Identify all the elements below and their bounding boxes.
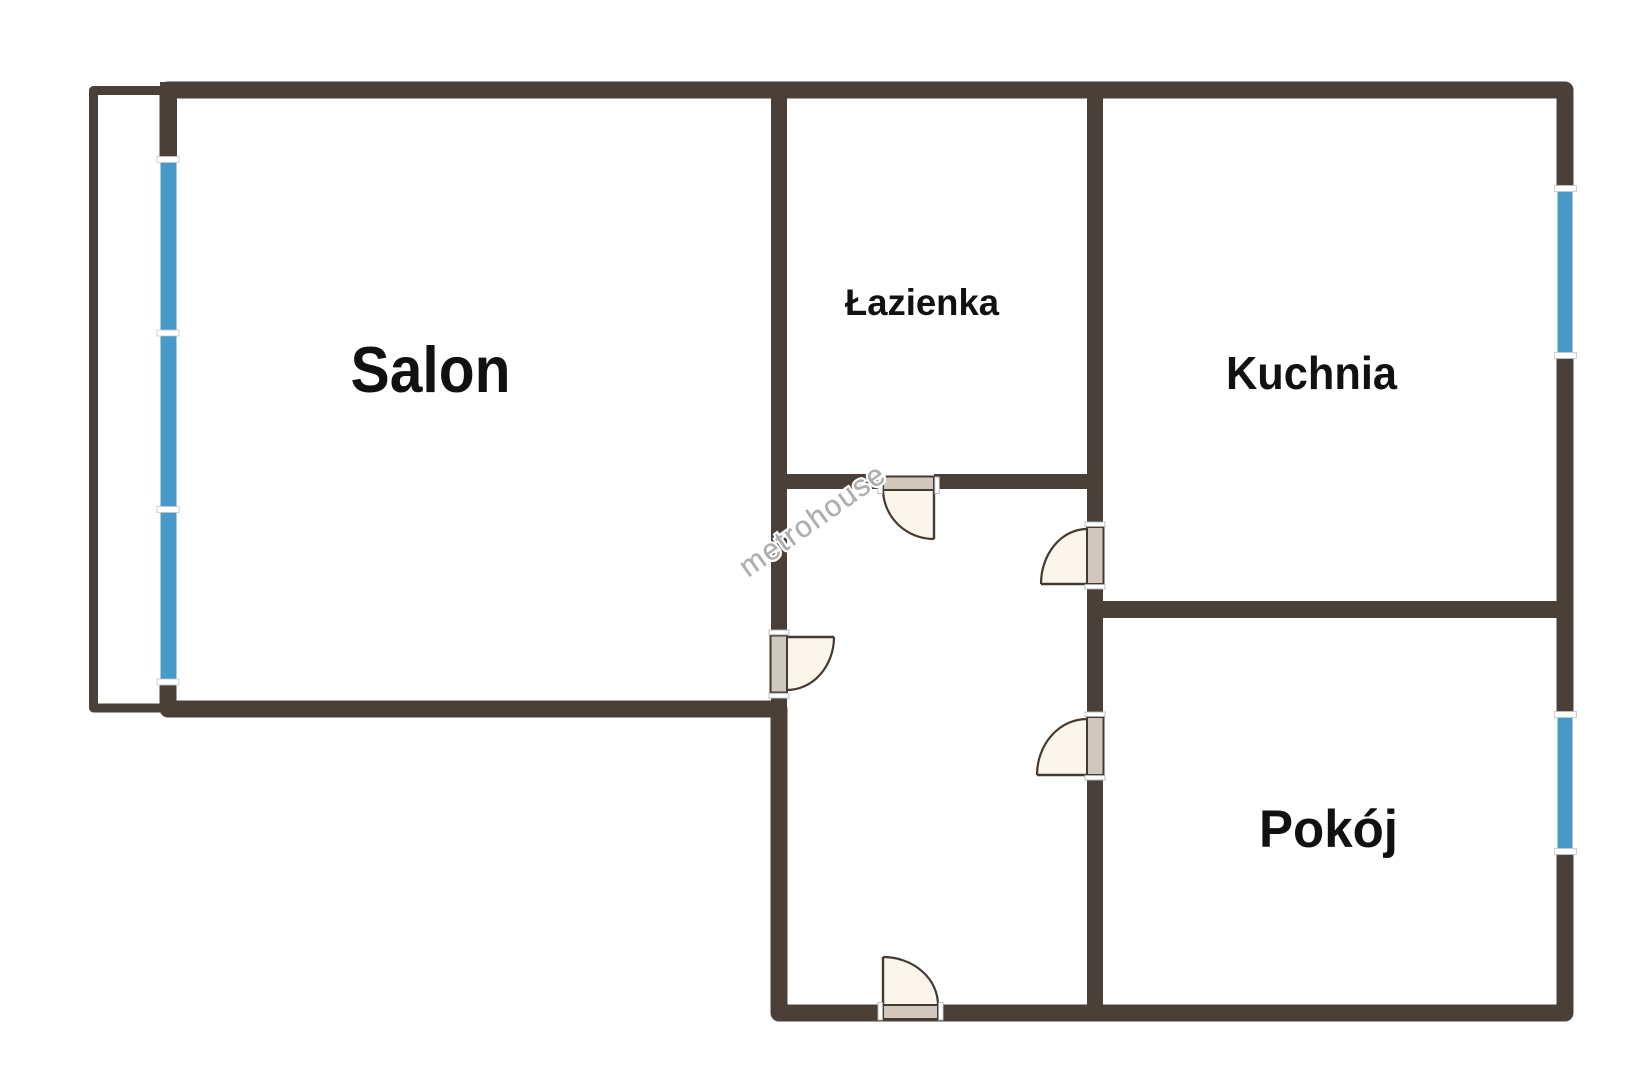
svg-text:Salon: Salon <box>351 333 511 406</box>
svg-text:Pokój: Pokój <box>1259 800 1398 859</box>
svg-text:Kuchnia: Kuchnia <box>1226 347 1397 399</box>
svg-text:Łazienka: Łazienka <box>845 281 1000 323</box>
